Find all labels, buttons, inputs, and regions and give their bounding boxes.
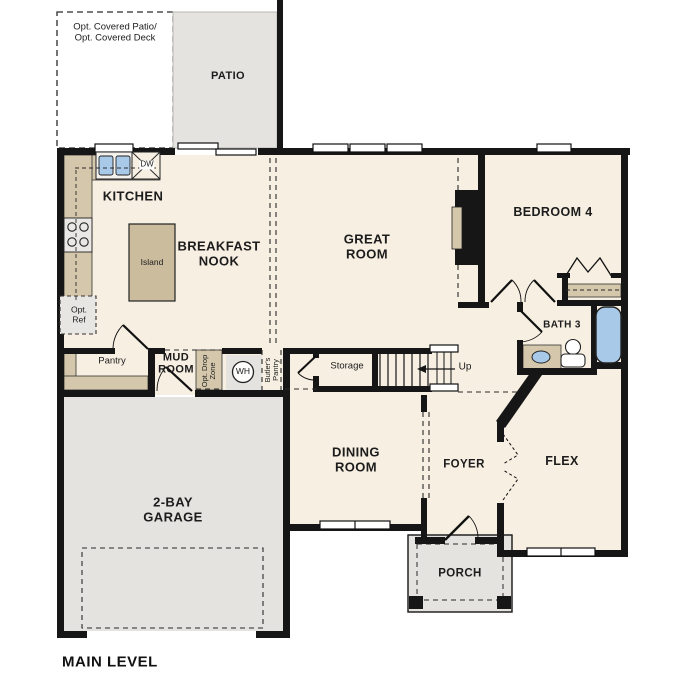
bath3-label: BATH 3 (543, 319, 581, 330)
breakfast-nook-label: BREAKFAST NOOK (177, 239, 260, 268)
great-room-window (313, 144, 348, 152)
stair-open-rail (430, 384, 458, 391)
fireplace (452, 190, 483, 265)
butlers-pantry-label: Butler's Pantry (264, 358, 280, 383)
dishwasher-label: DW (139, 161, 154, 170)
water-heater-label: WH (236, 367, 250, 377)
porch-post (409, 596, 423, 609)
kitchen-sink (96, 152, 132, 179)
range-cooktop (64, 218, 92, 252)
porch-label: PORCH (438, 568, 482, 581)
bedroom4-window (537, 144, 571, 152)
vanity-sink (532, 351, 550, 363)
patio-slider-panel (216, 149, 256, 155)
pantry-label: Pantry (98, 357, 125, 368)
great-room-label: GREAT ROOM (344, 232, 391, 261)
opt-drop-zone-label: Opt. Drop Zone (201, 355, 217, 388)
garage-label: 2-BAY GARAGE (143, 495, 202, 524)
bedroom4-label: BEDROOM 4 (513, 205, 592, 219)
dining-room-label: DINING ROOM (332, 445, 380, 474)
floor-plan-drawing (0, 0, 687, 687)
opt-ref-label: Opt. Ref (71, 305, 87, 324)
patio-slider-panel (178, 143, 218, 149)
floor-areas (64, 12, 623, 631)
storage-label: Storage (330, 362, 363, 373)
flex-label: FLEX (545, 454, 579, 468)
kitchen-window (95, 144, 133, 152)
floor-plan: Opt. Covered Patio/ Opt. Covered Deck PA… (0, 0, 687, 687)
stair-open-rail (430, 345, 458, 352)
kitchen-label: KITCHEN (103, 190, 164, 205)
great-room-window (350, 144, 385, 152)
great-room-window (387, 144, 422, 152)
opt-covered-label: Opt. Covered Patio/ Opt. Covered Deck (73, 22, 156, 43)
plan-title: MAIN LEVEL (62, 654, 158, 671)
island-label: Island (141, 258, 164, 268)
bathtub (596, 307, 621, 363)
porch-post (497, 596, 511, 609)
pantry-shelf (64, 376, 148, 390)
mud-room-label: MUD ROOM (158, 352, 194, 377)
patio-label: PATIO (211, 70, 245, 82)
foyer-label: FOYER (443, 459, 485, 472)
up-label: Up (459, 361, 472, 372)
